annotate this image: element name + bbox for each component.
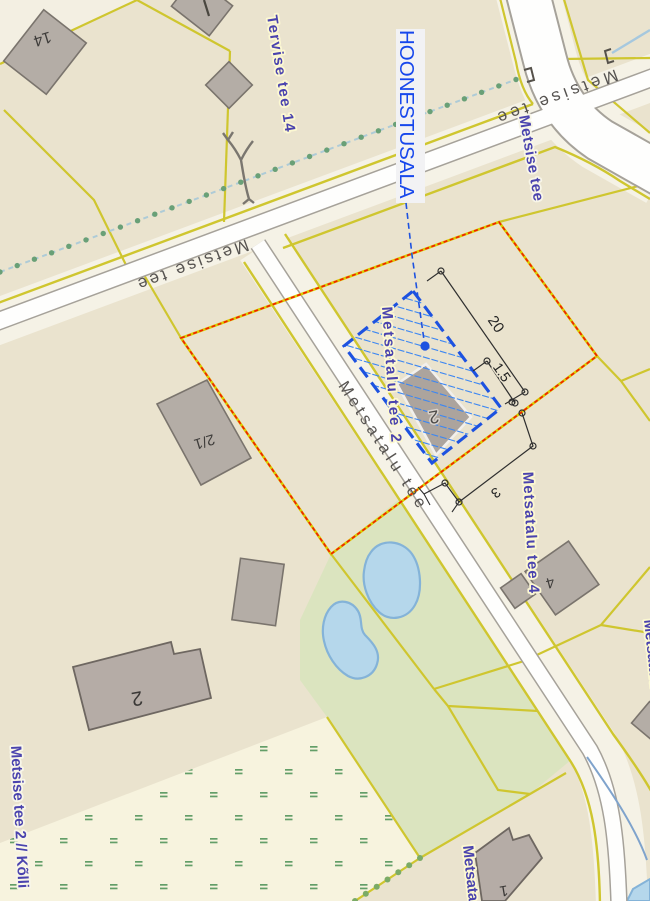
- svg-text:HOONESTUSALA: HOONESTUSALA: [395, 30, 418, 199]
